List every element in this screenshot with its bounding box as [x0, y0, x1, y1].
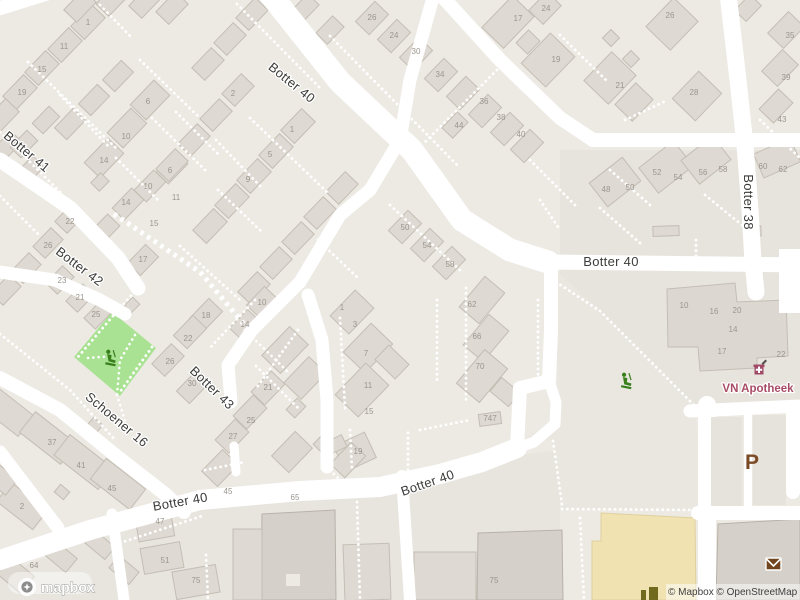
svg-text:22: 22 — [184, 334, 193, 343]
svg-text:18: 18 — [202, 311, 211, 320]
svg-text:45: 45 — [108, 484, 117, 493]
svg-text:26: 26 — [666, 11, 675, 20]
svg-text:51: 51 — [161, 556, 170, 565]
svg-text:3: 3 — [353, 320, 358, 329]
svg-text:58: 58 — [446, 260, 455, 269]
svg-text:41: 41 — [77, 461, 86, 470]
svg-text:64: 64 — [30, 561, 39, 570]
svg-text:P: P — [745, 451, 759, 474]
svg-text:747: 747 — [483, 414, 497, 423]
svg-text:19: 19 — [18, 88, 27, 97]
svg-text:9: 9 — [246, 175, 251, 184]
svg-text:45: 45 — [224, 487, 233, 496]
svg-text:14: 14 — [729, 325, 738, 334]
svg-text:5: 5 — [268, 150, 273, 159]
svg-text:6: 6 — [146, 97, 151, 106]
svg-text:26: 26 — [44, 241, 53, 250]
svg-text:11: 11 — [172, 193, 181, 202]
svg-text:75: 75 — [192, 576, 201, 585]
svg-text:75: 75 — [490, 576, 499, 585]
svg-text:11: 11 — [364, 381, 373, 390]
svg-text:38: 38 — [497, 113, 506, 122]
svg-text:19: 19 — [354, 447, 363, 456]
svg-text:17: 17 — [718, 347, 727, 356]
svg-text:22: 22 — [777, 350, 786, 359]
svg-text:56: 56 — [699, 168, 708, 177]
svg-text:37: 37 — [48, 438, 57, 447]
svg-text:24: 24 — [542, 4, 551, 13]
svg-text:24: 24 — [390, 31, 399, 40]
svg-text:52: 52 — [653, 168, 662, 177]
svg-text:26: 26 — [166, 357, 175, 366]
svg-text:65: 65 — [291, 493, 300, 502]
svg-text:58: 58 — [719, 165, 728, 174]
svg-text:48: 48 — [602, 185, 611, 194]
svg-text:17: 17 — [139, 255, 148, 264]
svg-text:22: 22 — [66, 217, 75, 226]
svg-text:66: 66 — [473, 332, 482, 341]
svg-text:60: 60 — [759, 162, 768, 171]
svg-text:36: 36 — [480, 97, 489, 106]
svg-text:35: 35 — [786, 31, 795, 40]
svg-text:54: 54 — [423, 241, 432, 250]
svg-text:19: 19 — [552, 55, 561, 64]
svg-text:7: 7 — [364, 349, 369, 358]
svg-text:VN Apotheek: VN Apotheek — [722, 383, 794, 395]
svg-text:Botter 40: Botter 40 — [583, 254, 638, 269]
svg-text:2: 2 — [20, 502, 25, 511]
svg-text:© Mapbox © OpenStreetMap: © Mapbox © OpenStreetMap — [668, 587, 798, 598]
svg-text:15: 15 — [150, 219, 159, 228]
svg-text:17: 17 — [514, 14, 523, 23]
svg-text:62: 62 — [468, 300, 477, 309]
svg-text:11: 11 — [60, 42, 69, 51]
svg-text:16: 16 — [710, 307, 719, 316]
svg-text:30: 30 — [412, 47, 421, 56]
svg-text:40: 40 — [517, 130, 526, 139]
svg-text:30: 30 — [188, 379, 197, 388]
svg-text:44: 44 — [455, 121, 464, 130]
svg-text:23: 23 — [58, 276, 67, 285]
svg-text:25: 25 — [92, 310, 101, 319]
svg-text:10: 10 — [680, 301, 689, 310]
svg-text:28: 28 — [690, 88, 699, 97]
svg-text:50: 50 — [401, 223, 410, 232]
svg-text:47: 47 — [156, 517, 165, 526]
svg-text:15: 15 — [365, 407, 374, 416]
svg-text:1: 1 — [290, 125, 295, 134]
svg-text:25: 25 — [247, 416, 256, 425]
svg-text:14: 14 — [241, 320, 250, 329]
svg-text:39: 39 — [782, 73, 791, 82]
svg-text:21: 21 — [76, 293, 85, 302]
svg-text:1: 1 — [86, 18, 91, 27]
svg-text:6: 6 — [168, 166, 173, 175]
svg-text:62: 62 — [779, 165, 788, 174]
svg-text:70: 70 — [476, 362, 485, 371]
svg-text:20: 20 — [733, 306, 742, 315]
svg-text:14: 14 — [122, 198, 131, 207]
svg-text:10: 10 — [144, 182, 153, 191]
svg-text:10: 10 — [258, 298, 267, 307]
svg-text:10: 10 — [122, 132, 131, 141]
svg-text:50: 50 — [626, 183, 635, 192]
svg-text:21: 21 — [264, 383, 273, 392]
svg-text:2: 2 — [231, 89, 236, 98]
svg-text:1: 1 — [340, 303, 345, 312]
svg-text:26: 26 — [368, 13, 377, 22]
svg-text:Botter 38: Botter 38 — [741, 174, 756, 229]
svg-text:27: 27 — [229, 432, 238, 441]
svg-text:43: 43 — [778, 115, 787, 124]
svg-text:34: 34 — [436, 70, 445, 79]
svg-text:mapbox: mapbox — [41, 579, 95, 595]
svg-text:15: 15 — [38, 65, 47, 74]
svg-text:14: 14 — [100, 156, 109, 165]
svg-text:21: 21 — [616, 81, 625, 90]
svg-text:54: 54 — [674, 173, 683, 182]
